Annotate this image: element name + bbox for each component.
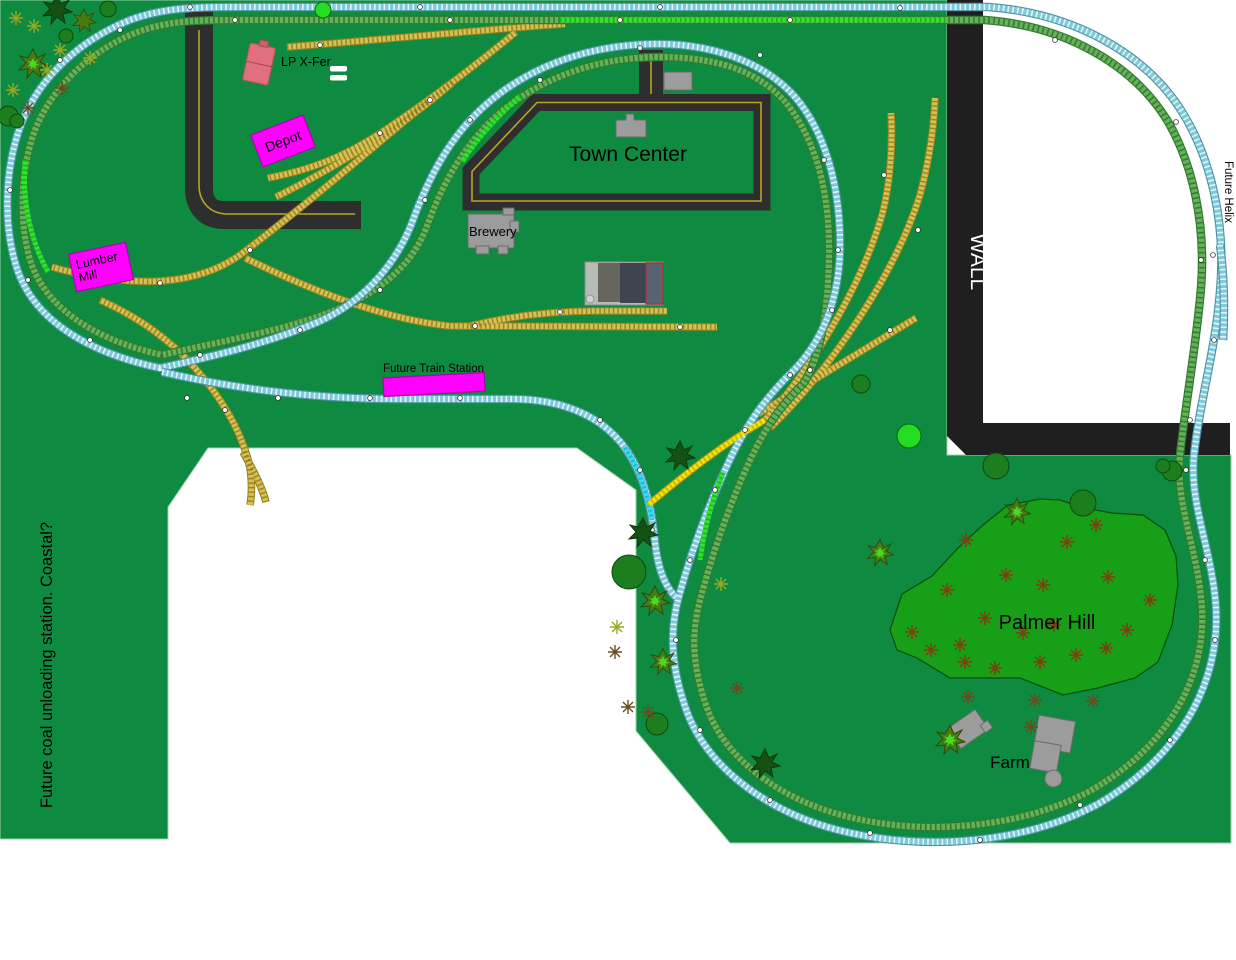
industry-building [585, 262, 663, 305]
coal-station-note: Future coal unloading station. Coastal? [38, 522, 56, 808]
future-helix-label: Future Helix [1222, 161, 1234, 223]
palmer-hill-label: Palmer Hill [999, 612, 1096, 634]
future-train-station-label: Future Train Station [383, 363, 484, 375]
town-side-building [664, 72, 692, 90]
track-plan-canvas: Depot Lumber Mill [0, 0, 1236, 960]
layout-diagram: Depot Lumber Mill [0, 0, 1236, 960]
town-center-label: Town Center [569, 143, 687, 166]
lp-xfer-label: LP X-Fer [281, 55, 331, 69]
farm-label: Farm [990, 753, 1030, 772]
wall-label: WALL [966, 234, 989, 290]
brewery-label: Brewery [469, 224, 517, 239]
future-helix-stub-track [1220, 245, 1224, 340]
